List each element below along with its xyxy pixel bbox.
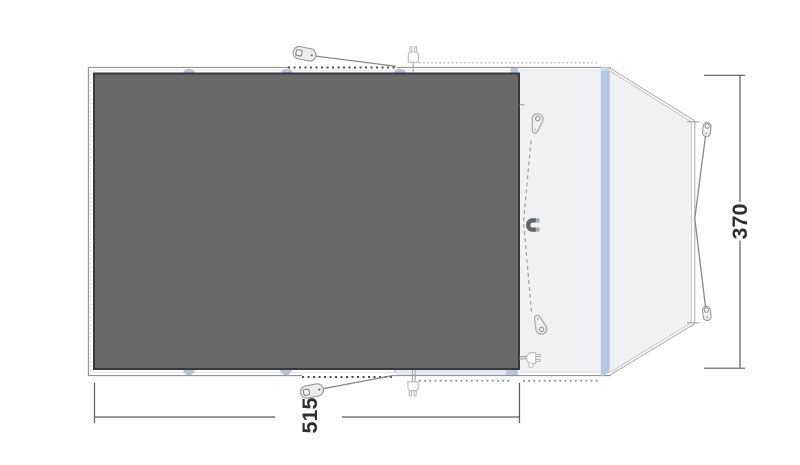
svg-text:370: 370 xyxy=(728,204,752,240)
svg-text:515: 515 xyxy=(298,398,322,434)
